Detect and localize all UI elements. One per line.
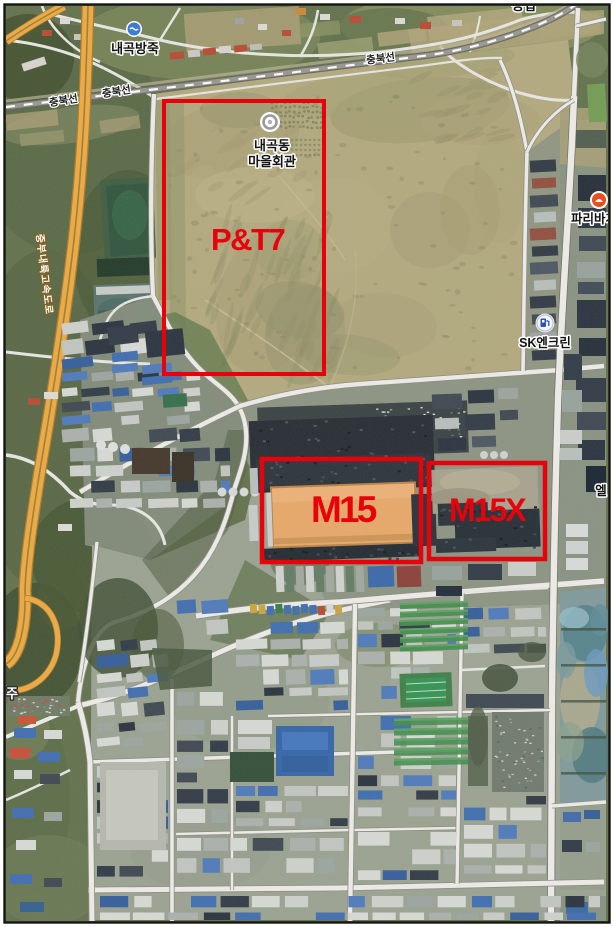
svg-text:마을회관: 마을회관 bbox=[248, 154, 296, 169]
svg-text:엘: 엘 bbox=[595, 484, 607, 498]
svg-text:P&T7: P&T7 bbox=[211, 222, 285, 257]
svg-text:파리바게: 파리바게 bbox=[571, 211, 614, 226]
svg-text:M15: M15 bbox=[311, 489, 377, 530]
svg-text:M15X: M15X bbox=[449, 492, 527, 528]
svg-text:내곡동: 내곡동 bbox=[254, 138, 290, 153]
svg-text:주: 주 bbox=[6, 686, 18, 701]
svg-text:SK엔크린: SK엔크린 bbox=[519, 335, 571, 350]
svg-text:내곡방죽: 내곡방죽 bbox=[111, 41, 159, 56]
